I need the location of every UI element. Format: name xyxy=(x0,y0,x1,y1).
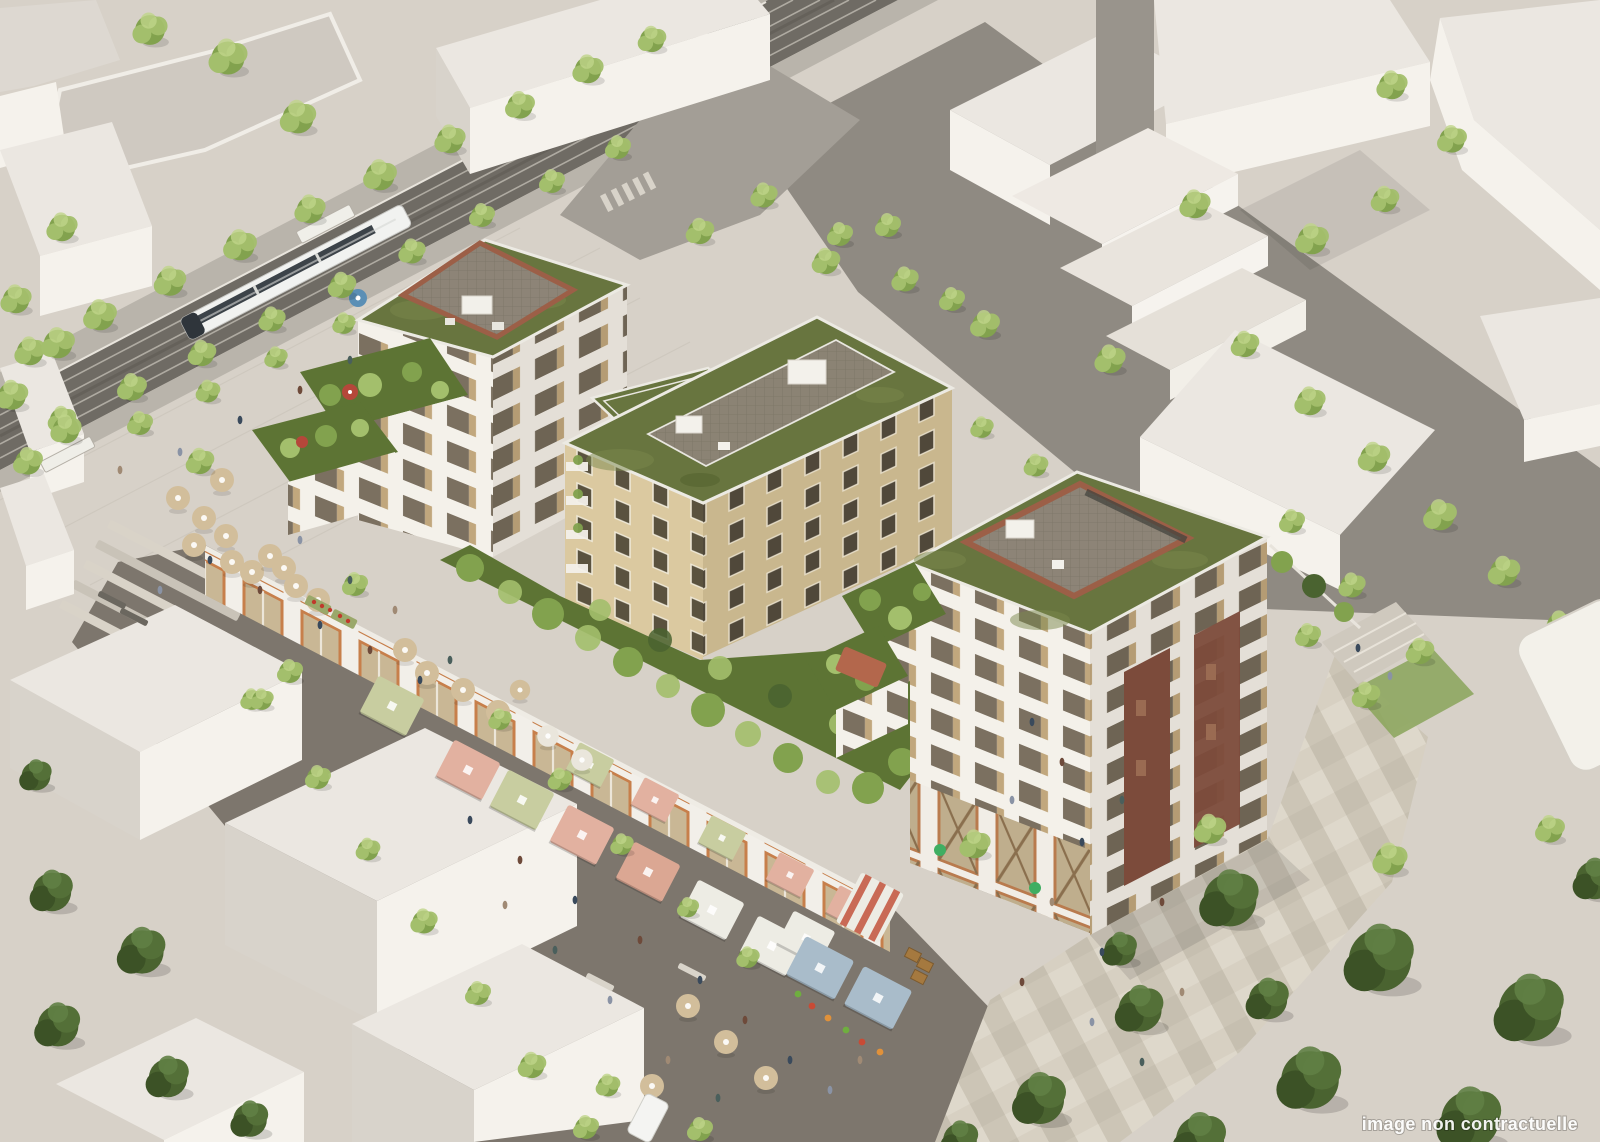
red-parasol xyxy=(342,384,358,400)
red-parasol xyxy=(296,436,308,448)
aerial-architectural-rendering: image non contractuelle xyxy=(0,0,1600,1142)
render-canvas: image non contractuelle xyxy=(0,0,1600,1142)
shop-sign xyxy=(934,844,946,856)
watermark-label: image non contractuelle xyxy=(1362,1114,1578,1134)
shop-sign xyxy=(1029,882,1041,894)
